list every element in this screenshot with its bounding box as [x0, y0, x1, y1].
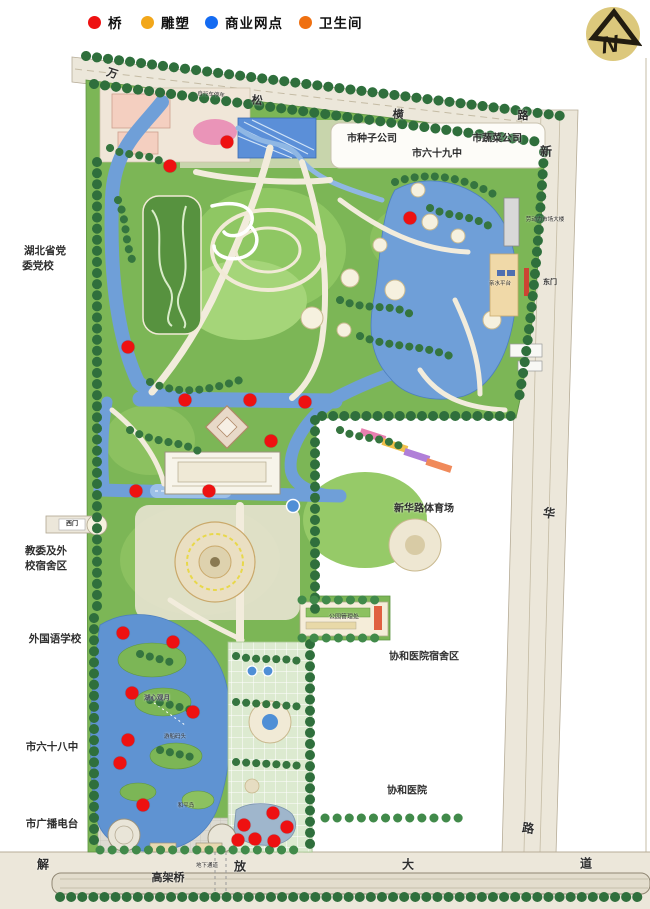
label-school-69: 市六十九中 — [412, 149, 462, 160]
bridge-marker — [244, 394, 257, 407]
bridge-marker — [117, 627, 130, 640]
toilet-dot-icon — [299, 16, 312, 29]
label-road-gaojiaqiao: 高架桥 — [152, 872, 185, 884]
label-road-fang: 放 — [234, 860, 246, 873]
commercial-dot-icon — [205, 16, 218, 29]
bridge-marker — [249, 833, 262, 846]
bridge-marker — [267, 807, 280, 820]
label-xiehe-dorm: 协和医院宿舍区 — [389, 652, 459, 663]
bridge-marker — [203, 485, 216, 498]
legend: 桥雕塑商业网点卫生间 — [0, 0, 650, 38]
sculpture-dot-icon — [141, 16, 154, 29]
label-xiehe-hospital: 协和医院 — [387, 786, 427, 797]
legend-item-commercial: 商业网点 — [205, 12, 283, 32]
bridge-marker — [167, 636, 180, 649]
label-road-hua: 华 — [542, 507, 556, 522]
label-road-jie: 解 — [37, 858, 49, 871]
label-vegetable-company: 市蔬菜公司 — [472, 134, 522, 145]
bridge-marker — [137, 799, 150, 812]
label-park-office: 公园管理处 — [329, 615, 359, 622]
site-logo: N — [584, 5, 642, 63]
label-peace-island: 和平岛 — [178, 803, 195, 809]
bridge-marker — [404, 212, 417, 225]
bridge-marker — [114, 757, 127, 770]
legend-label: 桥 — [108, 12, 123, 32]
label-road-xin: 新 — [540, 145, 552, 158]
label-waterfront-platform: 亲水平台 — [489, 281, 511, 287]
bridge-marker — [187, 706, 200, 719]
label-boat-dock: 游船码头 — [164, 734, 186, 740]
bridge-marker — [268, 835, 281, 848]
label-xinhua-stadium: 新华路体育场 — [394, 504, 454, 515]
label-underpass: 地下通道 — [196, 863, 218, 869]
label-hubei-party-school-2: 委党校 — [22, 261, 54, 273]
legend-label: 商业网点 — [225, 12, 283, 32]
bridge-dot-icon — [88, 16, 101, 29]
bridge-marker — [221, 136, 234, 149]
label-west-gate: 西门 — [66, 522, 78, 529]
bridge-marker — [122, 341, 135, 354]
bridge-marker — [281, 821, 294, 834]
bridge-marker — [164, 160, 177, 173]
bridge-marker — [238, 819, 251, 832]
bridge-marker — [299, 396, 312, 409]
label-east-gate: 东门 — [543, 279, 557, 287]
label-road-song: 松 — [251, 94, 264, 108]
bridge-marker — [122, 734, 135, 747]
bridge-marker — [130, 485, 143, 498]
legend-label: 雕塑 — [161, 12, 190, 32]
legend-item-toilet: 卫生间 — [299, 12, 363, 32]
bridge-marker — [126, 687, 139, 700]
label-road-lu-east: 路 — [521, 822, 535, 837]
label-road-heng: 横 — [392, 108, 404, 121]
park-map-page: 桥雕塑商业网点卫生间 N 万松横路新华路道解放大高架桥自行车停车湖北省党委党校市… — [0, 0, 650, 909]
bridge-marker — [265, 435, 278, 448]
label-edu-dorm-1: 教委及外 — [25, 546, 67, 558]
legend-item-sculpture: 雕塑 — [141, 12, 190, 32]
label-foreign-language-school: 外国语学校 — [29, 634, 82, 646]
label-radio-station: 市广播电台 — [26, 819, 79, 831]
label-school-68: 市六十八中 — [26, 742, 79, 754]
label-road-da: 大 — [402, 858, 414, 871]
bridge-marker — [232, 834, 245, 847]
label-edu-dorm-2: 校宿舍区 — [25, 561, 67, 573]
label-road-lu-north: 路 — [518, 110, 529, 122]
legend-item-bridge: 桥 — [88, 12, 123, 32]
label-hubei-party-school-1: 湖北省党 — [24, 246, 66, 258]
park-map-art — [0, 0, 650, 909]
label-road-dao: 道 — [580, 857, 592, 870]
legend-label: 卫生间 — [319, 12, 363, 32]
bridge-marker — [179, 394, 192, 407]
label-lake-heart-moon: 湖心观月 — [144, 694, 170, 701]
label-labor-market-building: 劳动力市场大楼 — [526, 217, 565, 223]
label-seed-company: 市种子公司 — [347, 134, 397, 145]
